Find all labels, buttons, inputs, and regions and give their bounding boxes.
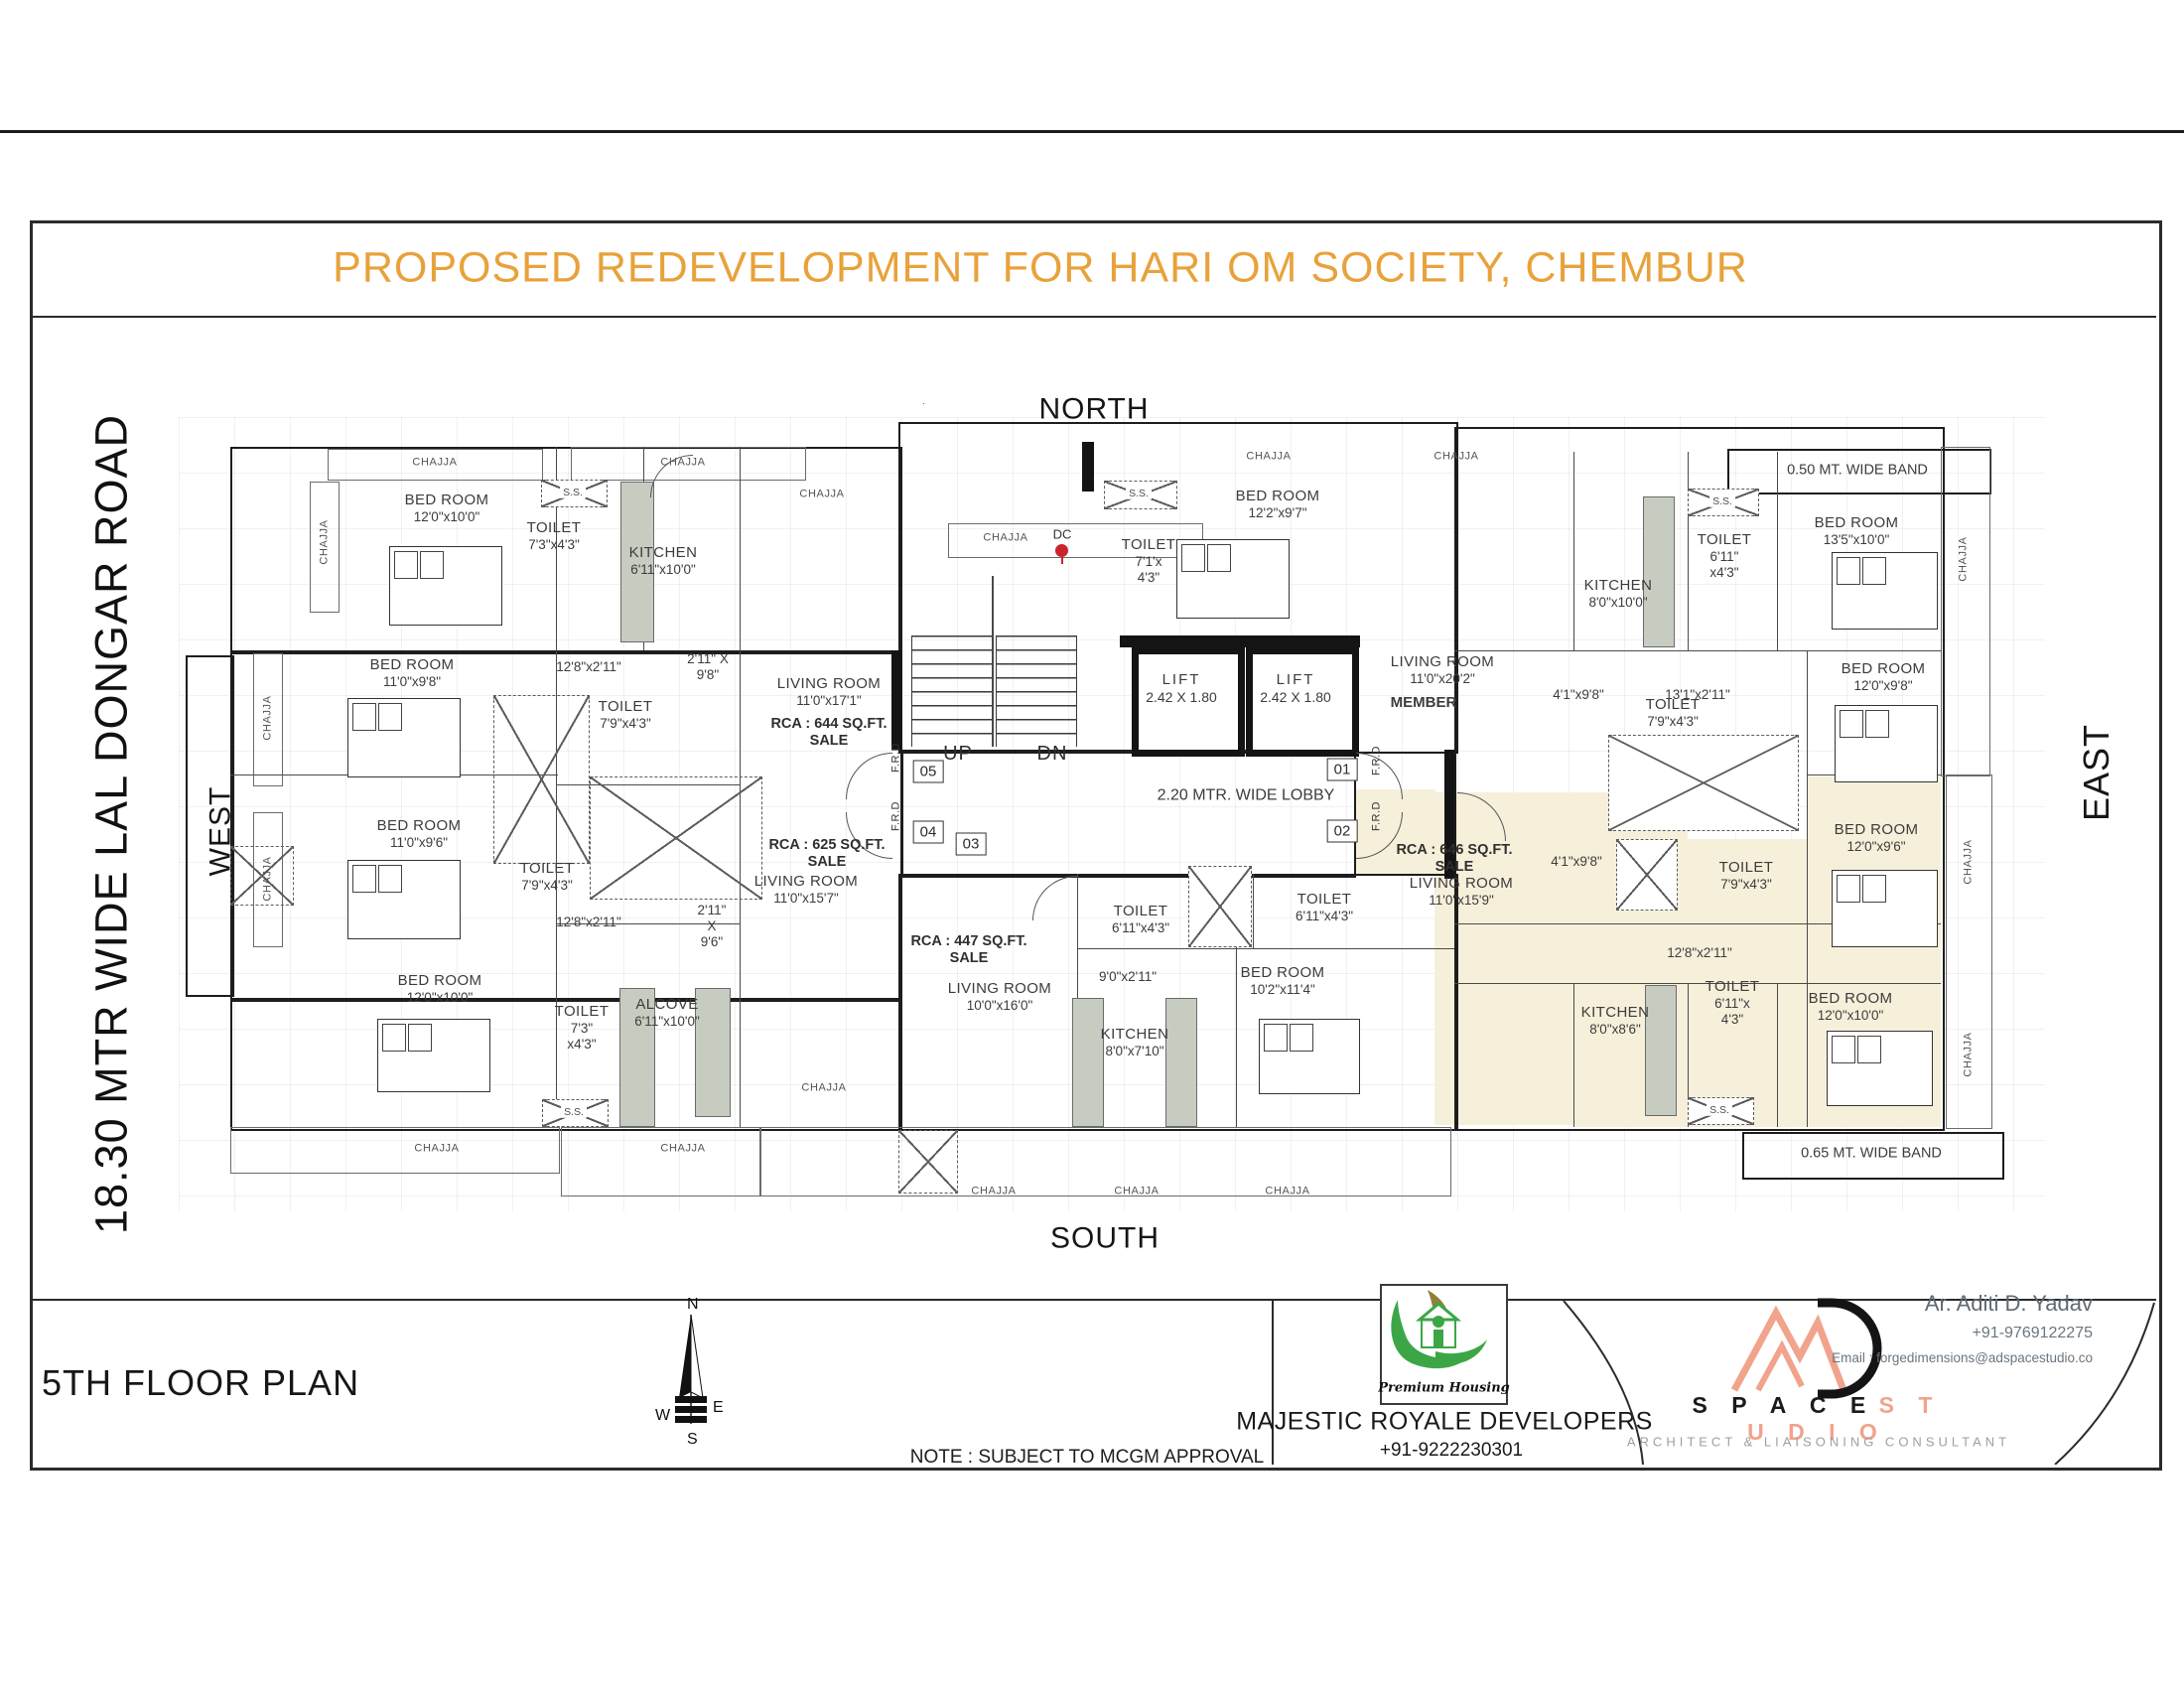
pillow-icon [1264,1024,1288,1052]
bed-icon [377,1019,490,1092]
pillow-icon [1840,710,1863,738]
partition [1807,650,1808,1127]
road-label: 18.30 MTR WIDE LAL DONGAR ROAD [84,414,137,1234]
bed-icon [389,546,502,626]
pillow-icon [1290,1024,1313,1052]
rca-label: RCA : 644 SQ.FT.SALE [770,716,887,750]
chajja-label: CHAJJA [262,856,275,901]
chajja-label: CHAJJA [660,1143,705,1156]
kitchen-counter [1645,985,1677,1116]
architect-email: Email : forgedimensions@adspacestudio.co [1832,1350,2093,1365]
room-label: KITCHEN6'11"x10'0" [629,544,698,578]
dc-label: DC [1053,526,1072,541]
chajja-label: CHAJJA [1246,451,1291,464]
room-label: LIVING ROOM11'0"x20'2" [1391,653,1494,687]
room-label: ALCOVE6'11"x10'0" [634,996,700,1030]
frd-label: F.R.D [1371,801,1384,831]
ss-label: S.S. [1706,1104,1732,1116]
pillow-icon [1862,875,1886,903]
stair-flight [911,635,993,747]
room-label: BED ROOM10'2"x11'4" [1241,964,1325,998]
ss-label: S.S. [560,487,586,498]
room-label: BED ROOM12'2"x9'7" [1236,488,1320,521]
bed-icon [347,860,461,939]
bed-icon [347,698,461,777]
pillow-icon [394,551,418,579]
stair-flight [996,635,1077,747]
lobby-outline [901,750,1356,878]
room-label: LIVING ROOM11'0"x15'7" [754,873,858,907]
lift-label: LIFT2.42 X 1.80 [1260,671,1331,705]
rca-label: RCA : 625 SQ.FT.SALE [768,837,885,871]
room-label: BED ROOM12'0"x10'0" [1809,990,1893,1024]
partition [1077,948,1454,949]
bed-icon [1835,705,1938,782]
architect-name: Ar. Aditi D. Yadav [1925,1291,2093,1317]
partition [740,998,741,1127]
chajja-label: CHAJJA [1265,1186,1309,1198]
room-label: BED ROOM11'0"x9'6" [377,817,462,851]
room-label: BED ROOM12'0"x9'6" [1835,821,1919,855]
chajja-label: CHAJJA [319,519,332,564]
partition [1688,452,1689,650]
architect-phone: +91-9769122275 [1973,1325,2093,1342]
partition [740,447,741,998]
pillow-icon [382,1024,406,1052]
partition [1454,983,1941,984]
pillow-icon [1837,875,1860,903]
drawing-sheet: PROPOSED REDEVELOPMENT FOR HARI OM SOCIE… [0,0,2184,1688]
pillow-icon [1181,544,1205,572]
duct-hatch [1616,839,1678,911]
chajja-strip [230,1127,560,1174]
room-label: KITCHEN8'0"x10'0" [1584,577,1653,611]
room-label: TOILET6'11"x4'3" [1296,891,1353,924]
pillow-icon [1837,557,1860,585]
room-label: BED ROOM12'0"x10'0" [398,972,482,1006]
dim-label: 12'8"x2'11" [1667,945,1732,961]
chajja-label: CHAJJA [660,457,705,470]
chajja-label: CHAJJA [799,489,844,501]
duct-hatch [590,776,762,900]
partition [1777,452,1778,650]
partition [1573,452,1574,650]
bed-icon [1832,552,1938,630]
room-label: TOILET7'3"x4'3" [555,1003,610,1053]
studio-logo-icon [1722,1291,1901,1408]
unit-badge-02: 02 [1327,820,1358,843]
pillow-icon [378,703,402,731]
wall-segment [1082,442,1094,492]
ss-label: S.S. [1709,495,1735,507]
frd-label: F.R.D [1371,746,1384,775]
chajja-label: CHAJJA [1114,1186,1159,1198]
kitchen-counter [1165,998,1197,1127]
member-label: MEMBER [1391,694,1457,712]
chajja-label: CHAJJA [971,1186,1016,1198]
unit-badge-03: 03 [956,833,987,856]
room-label: LIVING ROOM11'0"x15'9" [1410,875,1513,909]
dim-label: 2'11" X9'8" [687,651,729,683]
duct-hatch [1188,866,1252,947]
chajja-label: CHAJJA [1958,536,1971,581]
chajja-strip [1941,447,1990,776]
pillow-icon [352,865,376,893]
dim-label: 12'8"x2'11" [556,659,621,675]
dim-label: 13'1"x2'11" [1665,687,1730,703]
room-label: BED ROOM11'0"x9'8" [370,656,455,690]
unit-badge-01: 01 [1327,759,1358,781]
chajja-label: CHAJJA [1963,1032,1976,1076]
duct-hatch [493,695,590,864]
bed-icon [1827,1031,1933,1106]
pillow-icon [420,551,444,579]
room-label: BED ROOM12'0"x9'8" [1842,660,1926,694]
room-label: LIVING ROOM11'0"x17'1" [777,675,881,709]
room-label: KITCHEN8'0"x7'10" [1101,1026,1169,1059]
band-bottom-label: 0.65 MT. WIDE BAND [1801,1145,1942,1162]
studio-name-space: S P A C E [1693,1392,1875,1418]
pillow-icon [1865,710,1889,738]
stairs-down-label: DN [1037,743,1068,767]
rca-label: RCA : 646 SQ.FT.SALE [1396,842,1512,876]
frd-label: F.R.D [890,743,903,773]
room-label: KITCHEN8'0"x8'6" [1581,1004,1650,1038]
kitchen-counter [695,988,731,1117]
ss-label: S.S. [1126,488,1152,499]
room-label: BED ROOM12'0"x10'0" [405,492,489,525]
ss-label: S.S. [561,1106,587,1118]
lobby-label: 2.20 MTR. WIDE LOBBY [1158,787,1335,806]
room-label: TOILET7'9"x4'3" [520,860,575,894]
room-label: LIVING ROOM10'0"x16'0" [948,980,1051,1014]
dim-label: 9'0"x2'11" [1099,969,1157,985]
room-label: BED ROOM13'5"x10'0" [1815,514,1899,548]
east-label: EAST [2076,724,2117,821]
room-label: TOILET6'11"x4'3" [1112,903,1169,936]
chajja-label: CHAJJA [412,457,457,470]
room-label: TOILET7'3"x4'3" [527,519,582,553]
pillow-icon [1857,1036,1881,1063]
bed-icon [1259,1019,1360,1094]
pillow-icon [1862,557,1886,585]
duct-hatch [1608,735,1799,831]
sheet-title: PROPOSED REDEVELOPMENT FOR HARI OM SOCIE… [333,244,1748,293]
south-label: SOUTH [1050,1220,1160,1255]
dim-label: 2'11"X9'6" [698,903,727,950]
door-arc [923,403,924,404]
partition [1777,983,1778,1127]
room-label: TOILET6'11"x4'3" [1706,978,1760,1028]
room-label: TOILET7'9"x4'3" [1719,859,1774,893]
west-chajja-outline [186,655,234,997]
lift-label: LIFT2.42 X 1.80 [1146,671,1217,705]
wall-segment [891,650,901,750]
pillow-icon [378,865,402,893]
chajja-strip [759,1127,1451,1196]
chajja-label: CHAJJA [1963,839,1976,884]
partition [1454,650,1941,651]
stairs-up-label: UP [943,743,973,767]
partition [1573,983,1574,1127]
dc-marker-dot [1055,544,1068,557]
pillow-icon [408,1024,432,1052]
dim-label: 4'1"x9'8" [1553,687,1604,703]
chajja-strip [561,1127,761,1196]
dim-label: 12'8"x2'11" [556,914,621,930]
pillow-icon [1207,544,1231,572]
room-label: TOILET7'9"x4'3" [599,698,653,732]
band-top-label: 0.50 MT. WIDE BAND [1787,462,1928,479]
bed-icon [1832,870,1938,947]
partition [1253,874,1254,948]
unit-badge-05: 05 [913,761,944,783]
stair-rail [992,576,994,747]
title-divider [30,316,2156,318]
top-rule [0,130,2184,133]
kitchen-counter [1072,998,1104,1127]
chajja-label: CHAJJA [801,1082,846,1095]
room-label: TOILET6'11"x4'3" [1698,531,1752,581]
pillow-icon [352,703,376,731]
chajja-label: CHAJJA [983,532,1027,545]
rca-label: RCA : 447 SQ.FT.SALE [910,933,1026,967]
pillow-icon [1832,1036,1855,1063]
wall-segment [1120,635,1360,647]
studio-subtitle: ARCHITECT & LIAISONING CONSULTANT [1627,1435,2010,1450]
room-label: TOILET7'1'x4'3" [1122,536,1176,586]
corner-hatch [898,1130,958,1194]
kitchen-counter [1643,496,1675,647]
chajja-label: CHAJJA [1433,451,1478,464]
frd-label: F.R.D [890,801,903,831]
dim-label: 4'1"x9'8" [1551,854,1602,870]
chajja-label: CHAJJA [262,695,275,740]
bed-icon [1176,539,1290,619]
chajja-label: CHAJJA [414,1143,459,1156]
unit-badge-04: 04 [913,821,944,844]
